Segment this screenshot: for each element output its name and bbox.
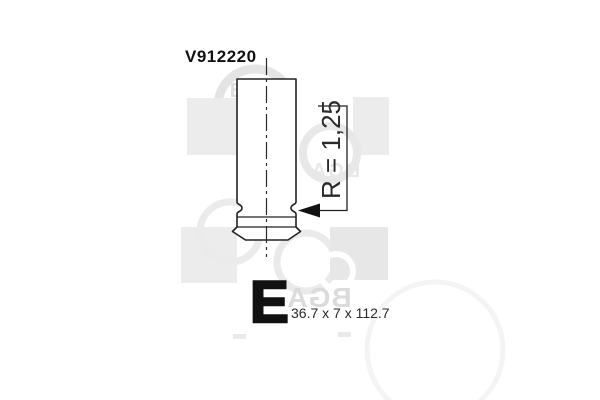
valve-outline bbox=[233, 79, 301, 240]
valve-type-letter: E bbox=[250, 270, 289, 335]
watermark-dash bbox=[338, 332, 351, 337]
part-number: V912220 bbox=[185, 47, 257, 66]
technical-drawing-svg: BGA BGA BGA bbox=[0, 0, 600, 400]
valve-catalog-image: BGA BGA BGA bbox=[0, 0, 600, 400]
watermark-dash bbox=[233, 334, 246, 339]
valve-dimensions: 36.7 x 7 x 112.7 bbox=[291, 305, 390, 321]
groove-radius-label: R = 1,25 bbox=[316, 100, 346, 199]
radius-callout-arrow-icon bbox=[298, 204, 320, 218]
watermark-faint-arc bbox=[367, 282, 503, 400]
watermark-square bbox=[187, 98, 237, 155]
